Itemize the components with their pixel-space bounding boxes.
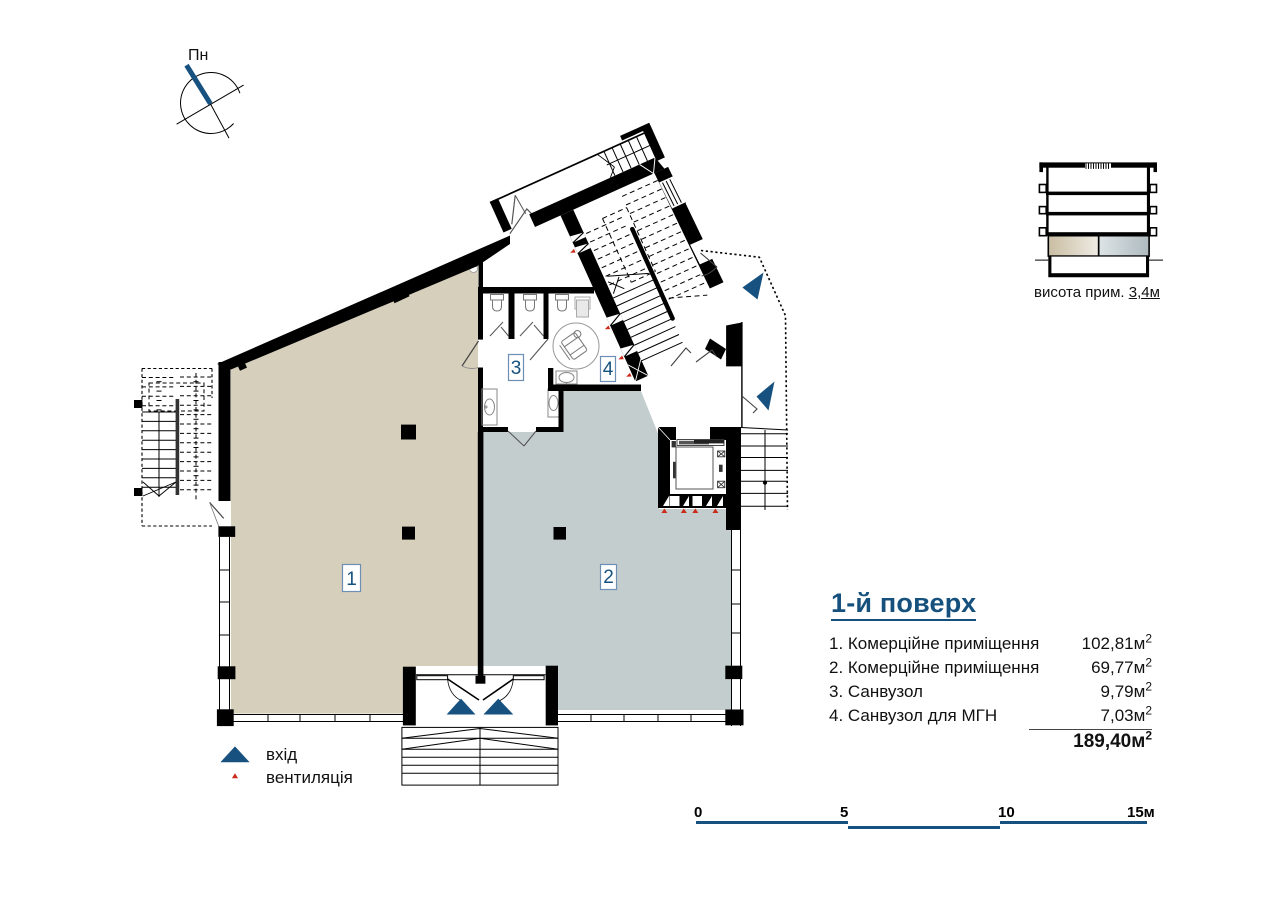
- svg-text:3: 3: [511, 358, 522, 379]
- svg-text:1: 1: [346, 569, 357, 590]
- svg-text:2: 2: [603, 567, 614, 588]
- svg-text:4: 4: [603, 359, 614, 380]
- svg-text:Пн: Пн: [188, 47, 208, 64]
